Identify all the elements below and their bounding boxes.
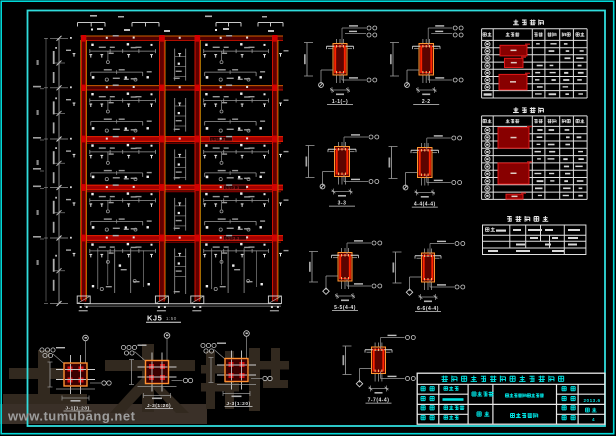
svg-text:5-5(4-4): 5-5(4-4) (334, 305, 356, 311)
svg-text:1-1(–): 1-1(–) (332, 99, 348, 105)
svg-text:2-2: 2-2 (422, 99, 431, 105)
svg-text:L1=3.3: L1=3.3 (226, 236, 240, 240)
svg-text:4-4(4-4): 4-4(4-4) (414, 202, 436, 208)
svg-text:3-3: 3-3 (338, 201, 347, 207)
svg-text:L1=3.3: L1=3.3 (212, 137, 226, 141)
svg-text:2013.6: 2013.6 (584, 398, 601, 403)
svg-text:KJ5: KJ5 (147, 314, 162, 323)
svg-text:6-6(4-4): 6-6(4-4) (417, 306, 439, 312)
svg-text:1:50: 1:50 (166, 316, 177, 321)
svg-text:7-7(4-4): 7-7(4-4) (368, 398, 390, 404)
svg-text:4: 4 (592, 417, 595, 422)
svg-text:L1=3.3: L1=3.3 (226, 186, 240, 190)
svg-text:www.tumubang.net: www.tumubang.net (7, 409, 136, 424)
